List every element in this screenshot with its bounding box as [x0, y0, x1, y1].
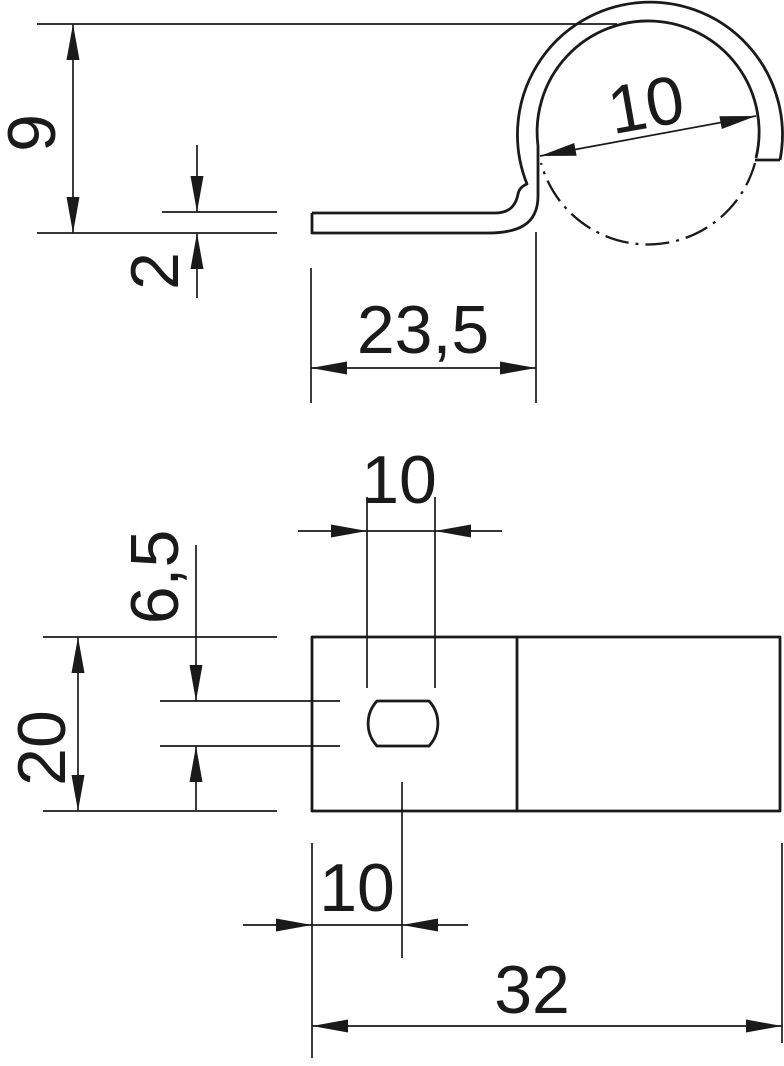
- arrowhead-right: [500, 362, 536, 375]
- technical-drawing: 9 2 23,5: [0, 0, 784, 1066]
- arrowhead-down: [67, 197, 80, 233]
- dim-thickness: 2: [117, 145, 277, 298]
- drawing-canvas: 9 2 23,5: [0, 0, 784, 1066]
- dim-label-slot-width: 6,5: [117, 530, 193, 625]
- slot-hole: [368, 701, 438, 746]
- dim-label-thickness: 2: [117, 252, 193, 290]
- dim-label-slot-offset: 10: [319, 850, 395, 926]
- arrowhead-up: [72, 637, 85, 673]
- clip-bottom-contour: [312, 21, 759, 233]
- pipe-centerline-arc: [541, 163, 755, 244]
- arrowhead-right: [746, 1020, 782, 1033]
- arrowhead-up: [190, 746, 203, 782]
- dim-loop-diameter: 10: [540, 61, 756, 156]
- arrowhead-left: [540, 143, 577, 156]
- dim-label-plate-length: 32: [494, 952, 570, 1028]
- arrowhead-right: [276, 919, 312, 932]
- dim-height: 9: [0, 24, 617, 233]
- arrowhead-left: [312, 1020, 348, 1033]
- dim-slot-length: 10: [298, 442, 502, 688]
- arrowhead-down: [191, 176, 204, 212]
- dim-label-height: 9: [0, 114, 70, 152]
- dim-plate-width: 20: [4, 637, 277, 811]
- arrowhead-left: [311, 362, 347, 375]
- dim-slot-offset: 10: [243, 782, 468, 1058]
- arrowhead-left: [402, 919, 438, 932]
- plate-outline: [312, 637, 780, 811]
- dim-label-plate-width: 20: [4, 710, 80, 786]
- dim-leg-length: 23,5: [311, 232, 536, 403]
- arrowhead-down: [190, 665, 203, 701]
- dim-label-loop-diameter: 10: [602, 61, 690, 149]
- side-view-geometry: [312, 2, 782, 244]
- arrowhead-right: [331, 525, 367, 538]
- arrowhead-right: [719, 116, 756, 129]
- arrowhead-left: [435, 525, 471, 538]
- dim-label-slot-length: 10: [361, 442, 437, 518]
- side-view: 9 2 23,5: [0, 2, 782, 403]
- plan-view-geometry: [312, 637, 780, 811]
- dim-slot-width: 6,5: [117, 530, 340, 810]
- plan-view: 10 6,5 20: [4, 442, 782, 1058]
- dim-label-leg-length: 23,5: [357, 292, 489, 368]
- arrowhead-up: [67, 24, 80, 60]
